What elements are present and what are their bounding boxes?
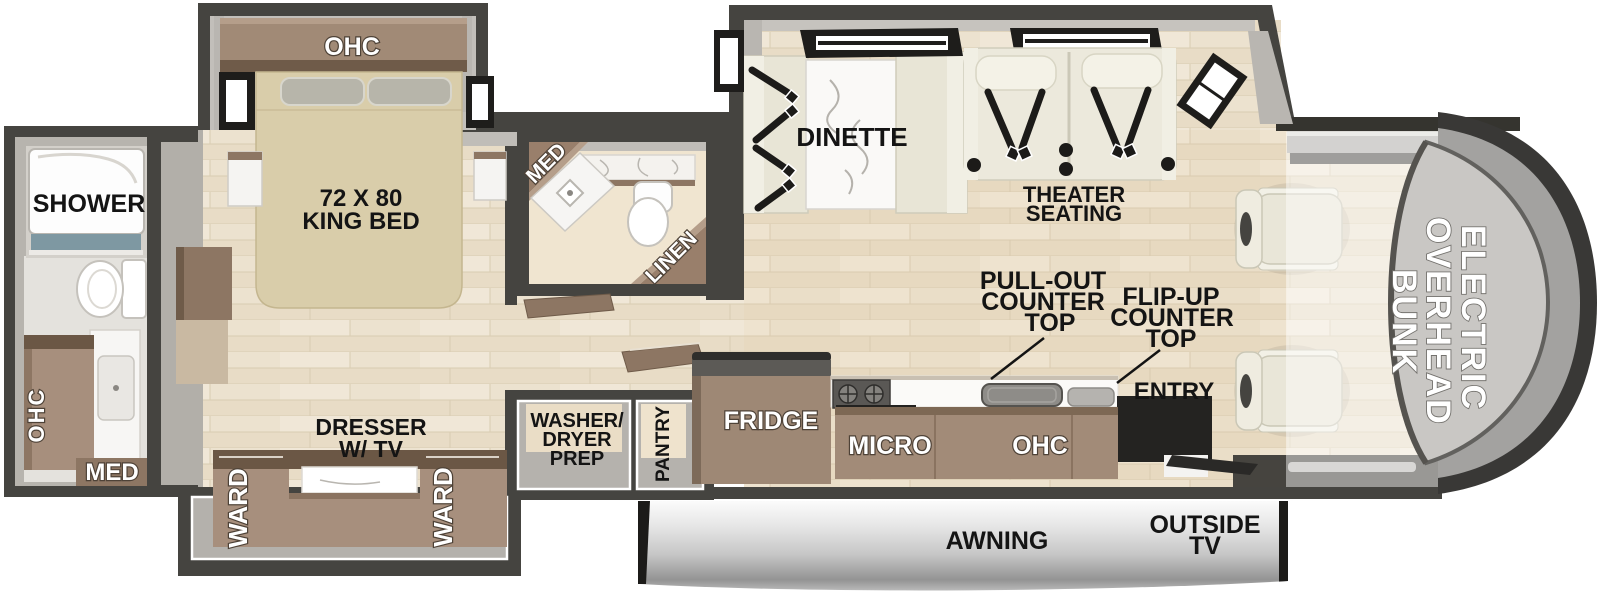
svg-text:WARD: WARD [223, 468, 253, 547]
svg-text:OVERHEAD: OVERHEAD [1419, 217, 1457, 426]
svg-text:SEATING: SEATING [1026, 201, 1122, 226]
svg-text:KING BED: KING BED [302, 208, 419, 235]
svg-text:OHC: OHC [324, 33, 380, 61]
svg-text:BUNK: BUNK [1385, 269, 1423, 375]
svg-text:FRIDGE: FRIDGE [724, 407, 818, 435]
svg-text:TOP: TOP [1025, 309, 1076, 337]
svg-text:SHOWER: SHOWER [33, 190, 146, 218]
svg-text:DINETTE: DINETTE [796, 122, 907, 152]
svg-text:ENTRY: ENTRY [1134, 378, 1214, 405]
svg-text:WARD: WARD [428, 467, 458, 546]
svg-text:TV: TV [1189, 532, 1221, 560]
svg-text:PREP: PREP [550, 448, 604, 470]
svg-text:ELECTRIC: ELECTRIC [1454, 225, 1492, 411]
svg-text:PANTRY: PANTRY [653, 406, 674, 482]
svg-text:TOP: TOP [1146, 325, 1197, 353]
svg-text:AWNING: AWNING [946, 527, 1049, 555]
svg-text:MED: MED [85, 459, 138, 486]
svg-text:MICRO: MICRO [848, 432, 931, 460]
svg-text:OHC: OHC [24, 388, 49, 443]
svg-text:OHC: OHC [1012, 432, 1068, 460]
svg-text:W/ TV: W/ TV [339, 436, 404, 462]
